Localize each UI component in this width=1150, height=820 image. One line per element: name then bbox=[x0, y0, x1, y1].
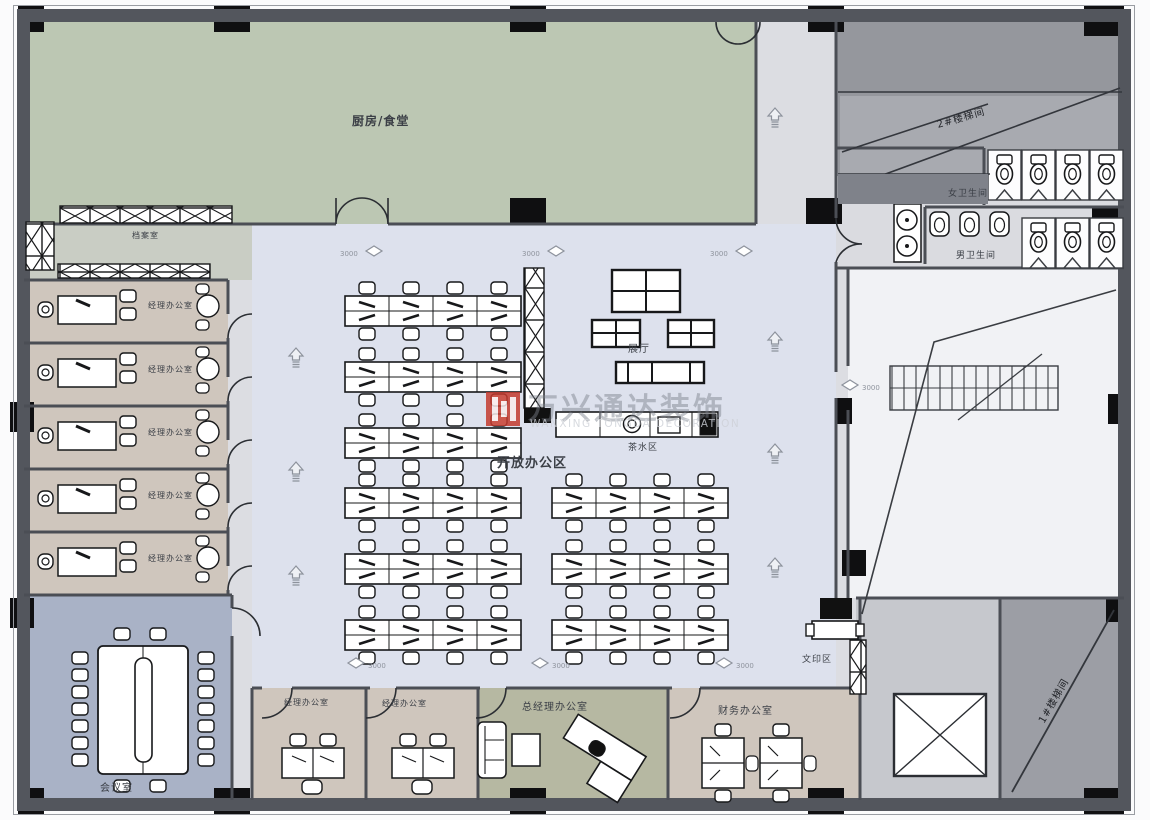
label-manager-5: 经理办公室 bbox=[148, 553, 193, 564]
copier bbox=[806, 598, 864, 639]
label-tea-area: 茶水区 bbox=[628, 440, 658, 453]
urinal bbox=[930, 212, 949, 236]
meeting-room-furniture bbox=[72, 628, 214, 792]
label-manager-1: 经理办公室 bbox=[148, 300, 193, 311]
workstation-bench bbox=[552, 606, 728, 664]
wc-stall bbox=[1056, 150, 1089, 200]
workstation-bench bbox=[552, 540, 728, 598]
label-male-wc: 男卫生间 bbox=[956, 248, 996, 261]
workstation-bench bbox=[552, 474, 728, 532]
exhibition-tables bbox=[592, 270, 714, 383]
gm-desk bbox=[550, 714, 646, 802]
svg-text:3000: 3000 bbox=[340, 250, 358, 258]
svg-text:3000: 3000 bbox=[862, 384, 880, 392]
partition-column bbox=[524, 408, 551, 423]
label-meeting: 会议室 bbox=[100, 779, 133, 794]
workstation-bench bbox=[345, 348, 521, 406]
wc-stall bbox=[1056, 218, 1089, 268]
svg-text:3000: 3000 bbox=[522, 250, 540, 258]
toilets bbox=[894, 150, 1123, 268]
finance-cluster bbox=[760, 724, 816, 802]
gm-sofa bbox=[478, 722, 506, 778]
stairs-middle bbox=[862, 290, 1116, 614]
label-manager-b1: 经理办公室 bbox=[284, 697, 329, 708]
elevator bbox=[894, 694, 986, 776]
label-archive: 档案室 bbox=[132, 230, 159, 241]
wc-stall bbox=[1022, 218, 1055, 268]
svg-text:3000: 3000 bbox=[368, 662, 386, 670]
gm-side-table bbox=[512, 734, 540, 766]
desk-pair bbox=[392, 734, 454, 794]
label-manager-b2: 经理办公室 bbox=[382, 698, 427, 709]
kitchen-counter bbox=[60, 206, 232, 223]
linework-layer: 2#楼梯间 1#楼梯间 3000 3000 3000 3000 3000 300… bbox=[0, 0, 1150, 820]
stairs-bottom-right bbox=[1012, 610, 1114, 792]
bottom-offices-furniture bbox=[282, 714, 816, 802]
tea-bar bbox=[556, 412, 718, 437]
left-shaft bbox=[26, 222, 54, 270]
label-manager-2: 经理办公室 bbox=[148, 364, 193, 375]
wc-stall bbox=[1022, 150, 1055, 200]
wc-stall bbox=[1090, 218, 1123, 268]
wc-stall bbox=[988, 150, 1021, 200]
urinal bbox=[960, 212, 979, 236]
label-manager-3: 经理办公室 bbox=[148, 427, 193, 438]
svg-text:3000: 3000 bbox=[710, 250, 728, 258]
label-open-office: 开放办公区 bbox=[497, 452, 567, 471]
walls bbox=[24, 22, 1124, 800]
floor-plan: 2#楼梯间 1#楼梯间 3000 3000 3000 3000 3000 300… bbox=[0, 0, 1150, 820]
label-kitchen: 厨房/食堂 bbox=[352, 112, 409, 129]
label-female-wc: 女卫生间 bbox=[948, 186, 988, 199]
workstation-bench bbox=[345, 540, 521, 598]
label-exhibition: 展厅 bbox=[628, 340, 650, 355]
workstation-bench bbox=[345, 606, 521, 664]
desk-pair bbox=[282, 734, 344, 794]
urinal bbox=[990, 212, 1009, 236]
print-partition bbox=[850, 640, 866, 694]
label-print-area: 文印区 bbox=[802, 652, 832, 665]
archive-cabinets bbox=[58, 264, 210, 278]
label-gm-office: 总经理办公室 bbox=[522, 698, 588, 713]
label-manager-4: 经理办公室 bbox=[148, 490, 193, 501]
workstation-bench bbox=[345, 474, 521, 532]
stair2-label: 2#楼梯间 bbox=[935, 105, 986, 131]
svg-text:3000: 3000 bbox=[736, 662, 754, 670]
workstation-bench bbox=[345, 282, 521, 340]
finance-cluster bbox=[702, 724, 758, 802]
label-finance: 财务办公室 bbox=[718, 702, 773, 717]
workstation-bench bbox=[345, 414, 521, 472]
display-partition bbox=[524, 268, 544, 408]
doors bbox=[228, 22, 862, 718]
wc-stall bbox=[1090, 150, 1123, 200]
svg-text:3000: 3000 bbox=[552, 662, 570, 670]
